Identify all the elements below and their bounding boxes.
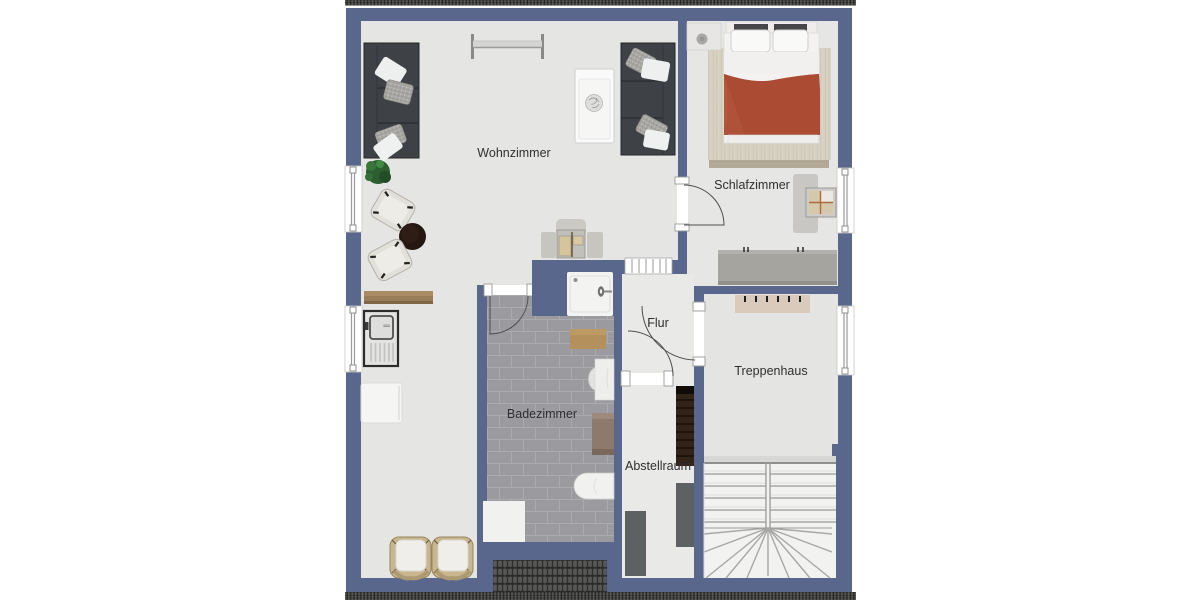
svg-text:Schlafzimmer: Schlafzimmer [714,178,790,192]
svg-text:Wohnzimmer: Wohnzimmer [477,146,550,160]
svg-text:Treppenhaus: Treppenhaus [734,364,807,378]
svg-text:Flur: Flur [647,316,669,330]
svg-text:Badezimmer: Badezimmer [507,407,577,421]
svg-text:Abstellraum: Abstellraum [625,459,691,473]
